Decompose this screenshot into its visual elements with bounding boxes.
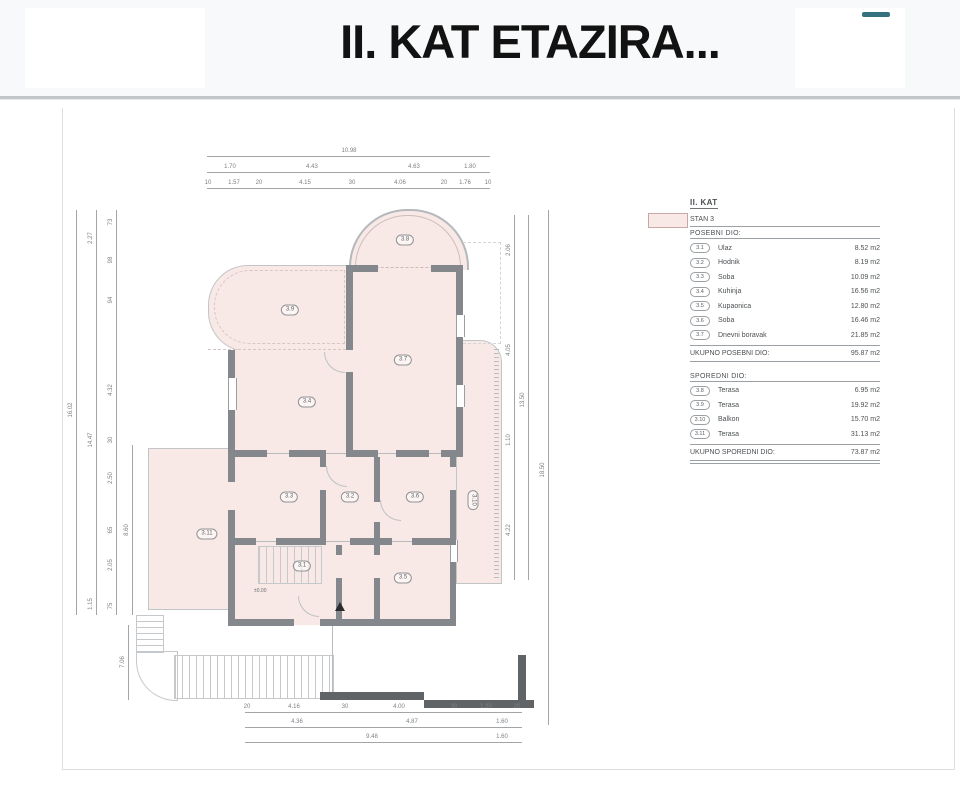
dim-label: 30 <box>349 180 356 186</box>
dim-label: 73 <box>108 219 114 226</box>
room-label-31: 3.1 <box>293 561 311 572</box>
row-name: Kupaonica <box>718 303 751 310</box>
wall-segment <box>228 619 294 626</box>
dim-label: 18.50 <box>540 462 546 477</box>
row-area: 12.80 m2 <box>851 303 880 310</box>
dim-label: 4.15 <box>299 180 311 186</box>
dim-label: 1.80 <box>464 164 476 170</box>
retaining-wall <box>320 692 424 700</box>
row-area: 15.70 m2 <box>851 416 880 423</box>
dim-label: 1.70 <box>224 164 236 170</box>
internal-stairs <box>258 546 322 584</box>
dim-label: 4.05 <box>506 344 512 356</box>
row-area: 6.95 m2 <box>855 387 880 394</box>
row-name: Soba <box>718 274 734 281</box>
dim-label: 4.22 <box>506 524 512 536</box>
row-number: 3.8 <box>690 386 710 396</box>
row-name: Ulaz <box>718 245 732 252</box>
room-label-311: 3.11 <box>196 529 217 540</box>
legend-row: 3.9 Terasa 19.92 m2 <box>690 398 880 413</box>
dim-label: 4.36 <box>291 719 303 725</box>
row-number: 3.1 <box>690 243 710 253</box>
dim-label: 4.06 <box>394 180 406 186</box>
dim-label: 9.48 <box>366 734 378 740</box>
level-mark: ±0.00 <box>254 588 266 594</box>
wall-segment <box>350 538 392 545</box>
wall-segment <box>450 490 456 540</box>
wall-segment <box>320 619 378 626</box>
wall-segment <box>346 450 378 457</box>
dim-label: 98 <box>108 257 114 264</box>
dim-label: 94 <box>108 297 114 304</box>
row-area: 31.13 m2 <box>851 431 880 438</box>
dim-line <box>528 215 529 580</box>
legend-row: 3.8 Terasa 6.95 m2 <box>690 384 880 399</box>
room-label-33: 3.3 <box>280 492 298 503</box>
dim-label: 4.00 <box>393 704 405 710</box>
row-area: 8.52 m2 <box>855 245 880 252</box>
dim-label: 10 <box>205 180 212 186</box>
legend-panel: II. KAT STAN 3 POSEBNI DIO: 3.1 Ulaz 8.5… <box>642 198 880 464</box>
legend-row: 3.10 Balkon 15.70 m2 <box>690 413 880 428</box>
room-label-32: 3.2 <box>341 492 359 503</box>
dim-label: 1.20 <box>480 704 492 710</box>
wall-segment <box>412 538 456 545</box>
dim-label: 4.63 <box>408 164 420 170</box>
wall-segment <box>374 457 380 502</box>
dim-label: 1.57 <box>228 180 240 186</box>
dim-label: 20 <box>514 704 521 710</box>
wall-segment <box>450 562 456 625</box>
wall-segment <box>456 265 463 295</box>
room-label-37: 3.7 <box>394 355 412 366</box>
wall-segment <box>450 457 456 467</box>
legend-row: 3.2 Hodnik 8.19 m2 <box>690 256 880 271</box>
dim-label: 2.50 <box>108 472 114 484</box>
legend-row: 3.5 Kupaonica 12.80 m2 <box>690 299 880 314</box>
wall-segment <box>456 337 463 385</box>
wall-segment <box>228 410 235 455</box>
dim-label: 4.16 <box>288 704 300 710</box>
retaining-wall <box>518 655 526 700</box>
posebni-total: UKUPNO POSEBNI DIO: 95.87 m2 <box>690 345 880 362</box>
dim-label: 14.47 <box>88 432 94 447</box>
dim-label: 2.27 <box>88 232 94 244</box>
dim-label: 20 <box>244 704 251 710</box>
window <box>456 385 465 407</box>
legend-row: 3.3 Soba 10.09 m2 <box>690 270 880 285</box>
wall-segment <box>228 457 235 482</box>
row-number: 3.3 <box>690 272 710 282</box>
teal-mark <box>862 12 890 17</box>
sporedni-header: SPOREDNI DIO: <box>690 370 880 382</box>
floor-plan: 3.8 3.9 3.7 3.4 3.3 3.2 3.6 3.10 3.1 3.5… <box>62 110 562 770</box>
row-area: 16.46 m2 <box>851 317 880 324</box>
dim-label: 16.02 <box>68 402 74 417</box>
external-stairs-upper <box>136 615 164 653</box>
sporedni-total: UKUPNO SPOREDNI DIO: 73.87 m2 <box>690 444 880 461</box>
row-name: Kuhinja <box>718 288 741 295</box>
dim-line <box>76 210 77 615</box>
row-number: 3.11 <box>690 429 710 439</box>
dim-line <box>128 625 129 700</box>
balcony-railing-hatch <box>494 346 499 578</box>
dim-label: 4.32 <box>108 384 114 396</box>
divider-line <box>0 96 960 100</box>
dim-label: 20 <box>256 180 263 186</box>
posebni-header: POSEBNI DIO: <box>690 227 880 239</box>
dim-label: 65 <box>108 527 114 534</box>
wall-segment <box>336 545 342 555</box>
dim-line <box>207 172 490 173</box>
row-area: 19.92 m2 <box>851 402 880 409</box>
page-title: II. KAT ETAZIRA... <box>100 14 960 69</box>
room-label-34: 3.4 <box>298 397 316 408</box>
row-name: Hodnik <box>718 259 740 266</box>
dim-line <box>245 712 522 713</box>
row-number: 3.6 <box>690 316 710 326</box>
legend-row: 3.1 Ulaz 8.52 m2 <box>690 241 880 256</box>
row-area: 21.85 m2 <box>851 332 880 339</box>
double-rule <box>690 461 880 464</box>
row-name: Terasa <box>718 387 739 394</box>
wall-segment <box>374 545 380 555</box>
dim-label: 4.43 <box>306 164 318 170</box>
wall-segment <box>228 450 267 457</box>
title-band: II. KAT ETAZIRA... <box>0 0 960 97</box>
dim-label: 10.98 <box>341 148 356 154</box>
dim-label: 10 <box>485 180 492 186</box>
row-number: 3.5 <box>690 301 710 311</box>
dim-line <box>245 742 522 743</box>
room-label-38: 3.8 <box>396 235 414 246</box>
dim-label: 30 <box>342 704 349 710</box>
row-number: 3.10 <box>690 415 710 425</box>
dim-label: 30 <box>451 704 458 710</box>
wall-segment <box>441 450 463 457</box>
dim-line <box>548 210 549 725</box>
dim-label: 4.87 <box>406 719 418 725</box>
dim-line <box>245 727 522 728</box>
wall-segment <box>378 619 456 626</box>
total-label: UKUPNO POSEBNI DIO: <box>690 350 769 357</box>
dim-label: 30 <box>108 437 114 444</box>
wall-segment <box>320 490 326 545</box>
row-area: 10.09 m2 <box>851 274 880 281</box>
row-number: 3.4 <box>690 287 710 297</box>
unit-color-swatch <box>648 213 688 228</box>
room-label-35: 3.5 <box>394 573 412 584</box>
dim-label: 20 <box>441 180 448 186</box>
window <box>456 315 465 337</box>
external-stairs-run <box>174 655 334 699</box>
row-name: Soba <box>718 317 734 324</box>
dim-line <box>116 210 117 615</box>
spacer <box>690 362 880 370</box>
wall-segment <box>374 578 380 619</box>
dim-label: 13.50 <box>520 392 526 407</box>
external-stairs-curve <box>136 651 178 701</box>
row-area: 16.56 m2 <box>851 288 880 295</box>
construction-dashed-line <box>463 242 501 344</box>
dim-label: 75 <box>108 603 114 610</box>
row-area: 8.19 m2 <box>855 259 880 266</box>
dim-line <box>96 210 97 615</box>
terrace-inner-line <box>214 270 345 344</box>
dim-label: 1.15 <box>88 598 94 610</box>
wall-segment <box>346 372 353 455</box>
dim-line <box>207 156 490 157</box>
site-line <box>332 626 333 692</box>
legend-row: 3.4 Kuhinja 16.56 m2 <box>690 285 880 300</box>
row-name: Terasa <box>718 431 739 438</box>
dim-label: 2.05 <box>108 559 114 571</box>
wall-segment <box>228 350 235 378</box>
row-number: 3.7 <box>690 330 710 340</box>
sheet-border-right <box>954 108 955 770</box>
row-name: Balkon <box>718 416 739 423</box>
wall-segment <box>346 295 353 350</box>
wall-segment <box>346 265 353 295</box>
wall-segment <box>228 538 235 626</box>
wall-segment <box>456 407 463 455</box>
legend-row: 3.7 Dnevni boravak 21.85 m2 <box>690 328 880 343</box>
room-label-39: 3.9 <box>281 305 299 316</box>
dim-label: 1.10 <box>506 434 512 446</box>
room-label-310: 3.10 <box>468 490 479 510</box>
total-label: UKUPNO SPOREDNI DIO: <box>690 449 775 456</box>
total-value: 73.87 m2 <box>851 449 880 456</box>
legend-row: 3.6 Soba 16.46 m2 <box>690 314 880 329</box>
row-number: 3.2 <box>690 258 710 268</box>
wall-segment <box>276 538 326 545</box>
wall-segment <box>396 450 429 457</box>
row-number: 3.9 <box>690 400 710 410</box>
row-name: Dnevni boravak <box>718 332 767 339</box>
total-value: 95.87 m2 <box>851 350 880 357</box>
dim-label: 1.60 <box>496 719 508 725</box>
wall-segment <box>336 578 342 619</box>
dim-line <box>132 445 133 615</box>
dim-label: 1.60 <box>496 734 508 740</box>
wall-segment <box>228 510 235 538</box>
legend-row: 3.11 Terasa 31.13 m2 <box>690 427 880 442</box>
dim-label: 8.60 <box>124 524 130 536</box>
unit-label: STAN 3 <box>690 213 880 227</box>
dim-line <box>514 215 515 580</box>
dim-label: 7.06 <box>120 656 126 668</box>
wall-segment <box>456 295 463 315</box>
row-name: Terasa <box>718 402 739 409</box>
entrance-arrow <box>335 602 345 611</box>
room-label-36: 3.6 <box>406 492 424 503</box>
legend-title: II. KAT <box>690 198 718 209</box>
dim-label: 2.06 <box>506 244 512 256</box>
wall-segment <box>289 450 326 457</box>
dim-line <box>207 188 490 189</box>
dim-label: 1.76 <box>459 180 471 186</box>
window <box>228 378 237 410</box>
